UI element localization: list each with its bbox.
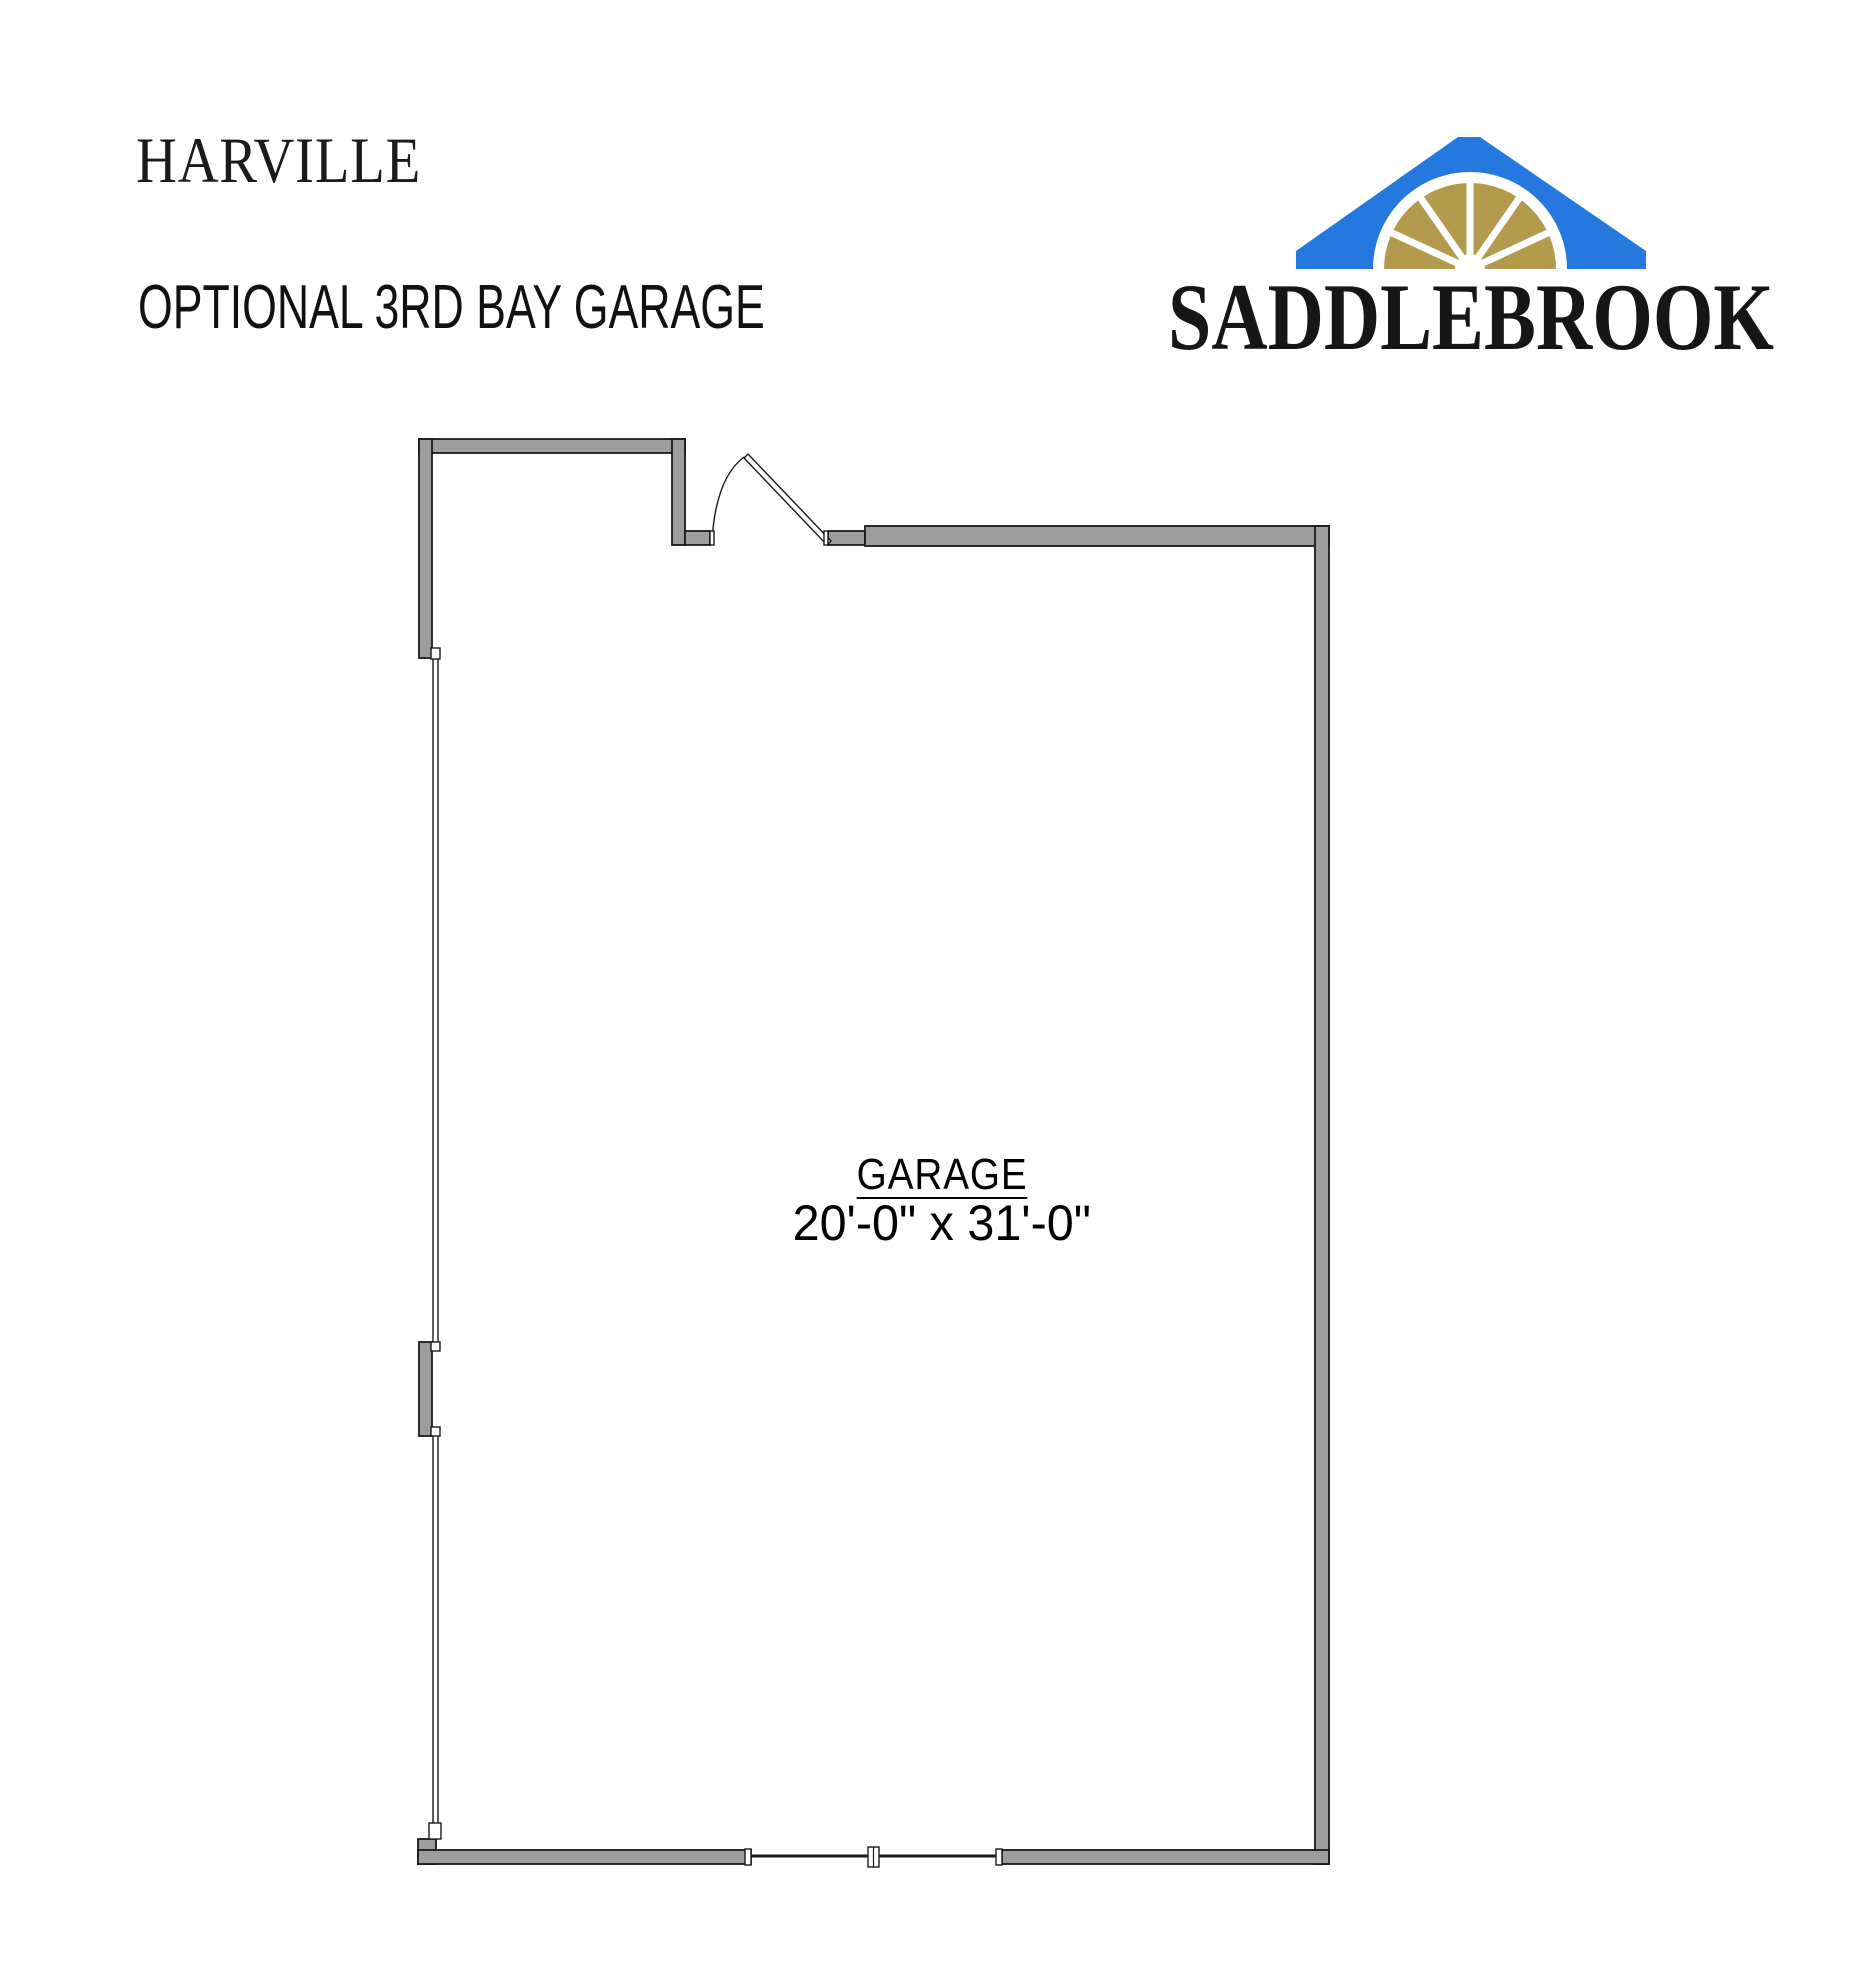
door-panel-icon <box>744 454 831 545</box>
wall-bottom-right <box>1002 1850 1329 1864</box>
plan-name-title: HARVILLE <box>136 129 464 194</box>
brand-name: SADDLEBROOK <box>1168 270 1859 365</box>
wall-right-of-door <box>828 531 865 545</box>
wall-left-post <box>419 1342 432 1436</box>
garage-room-label-wrap: GARAGE <box>742 1153 1142 1199</box>
wall-door-nib <box>685 531 710 545</box>
wall-bottom-left <box>418 1850 751 1864</box>
door-swing-arc-icon <box>712 457 744 540</box>
saddlebrook-roof-icon <box>1296 137 1646 284</box>
wall-top-right <box>865 526 1329 546</box>
wall-left-upper <box>419 439 432 658</box>
wall-top-left <box>419 439 685 453</box>
option-title-text: OPTIONAL 3RD BAY GARAGE <box>138 277 765 339</box>
wall-step <box>672 439 685 545</box>
option-title: OPTIONAL 3RD BAY GARAGE <box>138 277 1009 339</box>
wall-right <box>1315 526 1329 1864</box>
garage-room-dimensions: 20'-0" x 31'-0" <box>793 1198 1091 1248</box>
wall-left-thin-lines <box>433 659 438 1823</box>
garage-room-dimensions-wrap: 20'-0" x 31'-0" <box>742 1198 1142 1248</box>
brand-name-text: SADDLEBROOK <box>1168 270 1774 365</box>
plan-name-text: HARVILLE <box>136 129 421 194</box>
garage-room-label: GARAGE <box>857 1153 1028 1199</box>
page: HARVILLE OPTIONAL 3RD BAY GARAGE SADDLEB… <box>0 0 1859 1962</box>
